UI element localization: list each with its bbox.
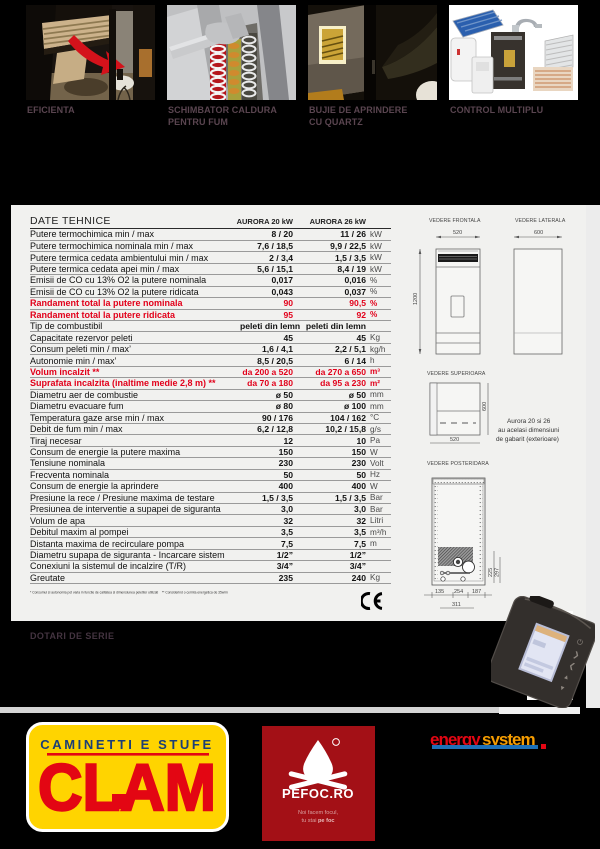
svg-text:Aurora 20 si 26: Aurora 20 si 26 xyxy=(507,418,551,425)
svg-text:tu stai pe foc: tu stai pe foc xyxy=(302,818,335,824)
svg-text:au acelasi dimensiuni: au acelasi dimensiuni xyxy=(498,427,559,434)
svg-text:Noi facem focul,: Noi facem focul, xyxy=(298,810,339,816)
svg-text:520: 520 xyxy=(453,230,462,236)
svg-text:311: 311 xyxy=(452,602,461,608)
svg-text:CLAM: CLAM xyxy=(38,750,216,824)
svg-text:VEDERE FRONTALA: VEDERE FRONTALA xyxy=(429,218,481,224)
svg-text:VEDERE SUPERIOARA: VEDERE SUPERIOARA xyxy=(427,371,486,377)
svg-text:600: 600 xyxy=(482,402,488,411)
svg-text:PEFOC.RO: PEFOC.RO xyxy=(282,786,354,801)
svg-text:225: 225 xyxy=(488,568,494,577)
svg-text:297: 297 xyxy=(495,568,501,577)
svg-text:VEDERE LATERALA: VEDERE LATERALA xyxy=(515,218,566,224)
svg-text:600: 600 xyxy=(534,230,543,236)
svg-text:135: 135 xyxy=(435,589,444,595)
svg-text:de gabarit (exterioare): de gabarit (exterioare) xyxy=(496,436,559,443)
svg-text:520: 520 xyxy=(450,437,459,443)
svg-text:187: 187 xyxy=(472,589,481,595)
svg-text:VEDERE POSTERIDARA: VEDERE POSTERIDARA xyxy=(427,461,489,467)
svg-text:254: 254 xyxy=(454,589,463,595)
svg-text:1200: 1200 xyxy=(413,293,419,305)
